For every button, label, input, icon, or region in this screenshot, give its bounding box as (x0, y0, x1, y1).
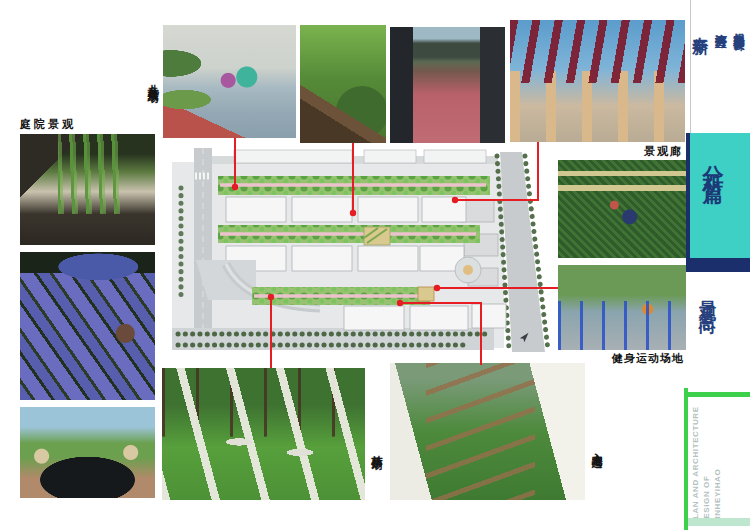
callout-line-playground (234, 138, 236, 187)
presentation-board: 庭院景观 儿童嬉戏场 景观廊 健身运动场地 林荫小广场 入户宅间道 (0, 0, 750, 530)
pale-green-bar (688, 518, 750, 526)
callout-line-pergola-h (455, 199, 539, 201)
section-title: 分析篇 (699, 148, 727, 175)
photo-fitness-equipment (558, 265, 686, 350)
label-fitness: 健身运动场地 (612, 351, 684, 366)
callout-line-entry-v (480, 302, 482, 365)
english-line-2: DESIGN OF (701, 395, 712, 525)
photo-fountain (20, 407, 155, 498)
project-location: 奉新 (689, 24, 710, 32)
photo-wood-boardwalk (300, 25, 386, 143)
sidebar-divider (690, 0, 691, 133)
label-gallery: 景观廊 (644, 144, 683, 159)
green-accent-strip (684, 388, 688, 530)
english-line-3: BINHEYIHAO (712, 395, 723, 525)
label-courtyard: 庭院景观 (20, 117, 76, 132)
callout-line-entry-h (400, 302, 482, 304)
english-subtitle: PLAN AND ARCHITECTURE DESIGN OF BINHEYIH… (690, 395, 724, 525)
photo-night-stone-paving (20, 252, 155, 400)
photo-children-playground (163, 25, 296, 138)
photo-red-brick-path (390, 27, 505, 143)
project-name: 滨河壹号 (712, 24, 729, 32)
master-plan (168, 148, 555, 360)
label-shade-plaza: 林荫小广场 (369, 446, 384, 451)
callout-line-boardwalk (352, 143, 354, 213)
label-entry-path: 入户宅间道 (589, 444, 604, 449)
photo-entry-path (390, 363, 585, 500)
photo-exercise-hedge (558, 160, 686, 258)
chapter-title: 景观意向 (696, 286, 719, 310)
project-title-block: 规划建筑方案设计 滨河壹号 奉新 (687, 24, 747, 32)
callout-line-fitness (437, 287, 558, 289)
section-analysis-box: 分析篇 (686, 133, 750, 258)
english-line-1: PLAN AND ARCHITECTURE (690, 395, 701, 525)
navy-accent-bar (686, 258, 750, 272)
photo-shaded-plaza (162, 368, 365, 500)
callout-line-pergola-v (537, 142, 539, 201)
photo-pergola-gallery (510, 20, 685, 142)
callout-line-plaza (270, 297, 272, 368)
label-children-play: 儿童嬉戏场 (145, 75, 160, 85)
project-subtitle: 规划建筑方案设计 (731, 24, 746, 32)
photo-courtyard-garden (20, 134, 155, 245)
